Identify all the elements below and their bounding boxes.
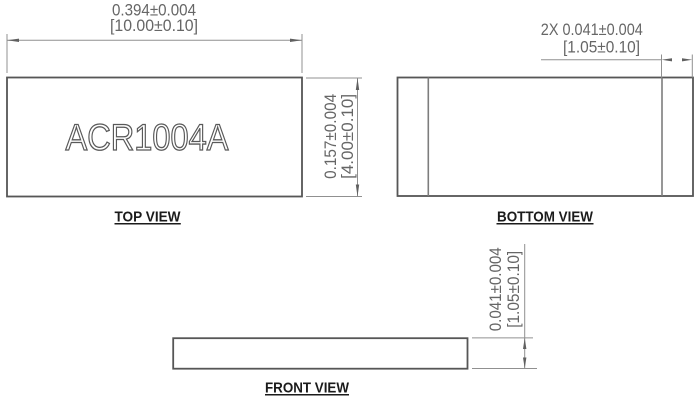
svg-text:[1.05±0.10]: [1.05±0.10]	[505, 251, 523, 328]
svg-text:0.157±0.004: 0.157±0.004	[322, 94, 340, 179]
svg-text:ACR1004A: ACR1004A	[66, 117, 229, 158]
svg-text:[4.00±0.10]: [4.00±0.10]	[339, 94, 357, 179]
svg-text:[10.00±0.10]: [10.00±0.10]	[110, 17, 198, 35]
svg-text:2X 0.041±0.004: 2X 0.041±0.004	[541, 21, 643, 39]
svg-text:0.041±0.004: 0.041±0.004	[487, 247, 505, 331]
svg-text:FRONT VIEW: FRONT VIEW	[265, 379, 350, 396]
svg-text:[1.05±0.10]: [1.05±0.10]	[563, 39, 640, 57]
